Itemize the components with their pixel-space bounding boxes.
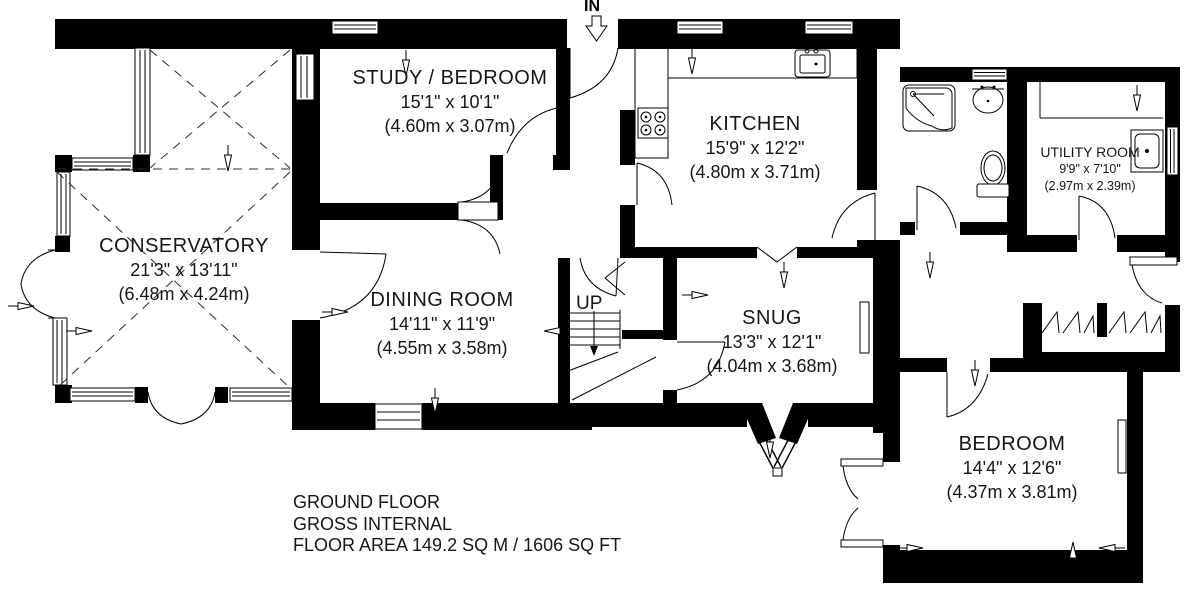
conservatory-windows	[53, 48, 292, 401]
study-bedroom-label: STUDY / BEDROOM 15'1" x 10'1" (4.60m x 3…	[353, 66, 548, 138]
floor-summary-line3: FLOOR AREA 149.2 SQ M / 1606 SQ FT	[293, 535, 621, 557]
floor-summary: GROUND FLOOR GROSS INTERNAL FLOOR AREA 1…	[293, 492, 621, 557]
room-dims-metric: (6.48m x 4.24m)	[99, 282, 269, 306]
entrance-door	[570, 48, 618, 98]
kitchen-corridor-door	[832, 193, 875, 240]
staircase	[568, 310, 656, 400]
dining-room-label: DINING ROOM 14'11" x 11'9" (4.55m x 3.58…	[370, 288, 513, 360]
room-dims-imperial: 14'4" x 12'6"	[946, 456, 1077, 480]
dining-window	[375, 404, 422, 429]
room-name: KITCHEN	[689, 112, 820, 136]
floorplan-canvas: CONSERVATORY 21'3" x 13'11" (6.48m x 4.2…	[0, 0, 1200, 600]
bedroom-label: BEDROOM 14'4" x 12'6" (4.37m x 3.81m)	[946, 432, 1077, 504]
basin-symbol	[972, 86, 1004, 114]
floor-summary-line2: GROSS INTERNAL	[293, 514, 621, 536]
conservatory-roof-lines	[57, 50, 292, 388]
room-name: CONSERVATORY	[99, 234, 269, 258]
radiator-snug	[860, 302, 869, 353]
floor-summary-line1: GROUND FLOOR	[293, 492, 621, 514]
room-dims-metric: (4.04m x 3.68m)	[706, 354, 837, 378]
room-name: BEDROOM	[946, 432, 1077, 456]
room-dims-metric: (4.60m x 3.07m)	[353, 114, 548, 138]
utility-door	[1079, 196, 1115, 240]
utility-room-label: UTILITY ROOM 9'9" x 7'10" (2.97m x 2.39m…	[1040, 144, 1139, 195]
room-name: STUDY / BEDROOM	[353, 66, 548, 90]
bedroom-french-doors	[841, 459, 883, 547]
conservatory-bottom-french-doors	[148, 392, 215, 424]
conservatory-label: CONSERVATORY 21'3" x 13'11" (6.48m x 4.2…	[99, 234, 269, 306]
entrance-arrow-icon	[586, 16, 607, 41]
room-dims-metric: (4.80m x 3.71m)	[689, 160, 820, 184]
room-dims-metric: (4.37m x 3.81m)	[946, 480, 1077, 504]
kitchen-label: KITCHEN 15'9" x 12'2" (4.80m x 3.71m)	[689, 112, 820, 184]
cupboard-door-chevron	[605, 262, 625, 295]
room-dims-imperial: 21'3" x 13'11"	[99, 258, 269, 282]
toilet-symbol	[977, 151, 1009, 197]
snug-label: SNUG 13'3" x 12'1" (4.04m x 3.68m)	[706, 306, 837, 378]
room-dims-imperial: 9'9" x 7'10"	[1040, 161, 1139, 178]
room-dims-imperial: 15'9" x 12'2"	[689, 136, 820, 160]
radiator-bedroom	[1118, 420, 1126, 473]
entrance-in-label: IN	[584, 0, 600, 16]
room-name: UTILITY ROOM	[1040, 144, 1139, 161]
room-dims-metric: (4.55m x 3.58m)	[370, 336, 513, 360]
hall-dining-door	[580, 258, 618, 296]
room-name: SNUG	[706, 306, 837, 330]
room-dims-metric: (2.97m x 2.39m)	[1040, 178, 1139, 195]
room-name: DINING ROOM	[370, 288, 513, 312]
stairs-direction-arrow	[590, 346, 598, 356]
shower-room-window	[972, 69, 1007, 80]
hall-kitchen-door	[637, 163, 672, 205]
stairs-up-label: UP	[576, 293, 602, 315]
room-dims-imperial: 14'11" x 11'9"	[370, 312, 513, 336]
kitchen-sink-symbol	[795, 49, 830, 77]
room-dims-imperial: 13'3" x 12'1"	[706, 330, 837, 354]
bedroom-door	[947, 372, 988, 417]
room-dims-imperial: 15'1" x 10'1"	[353, 90, 548, 114]
shower-symbol	[903, 85, 955, 131]
snug-splayed-opening	[757, 247, 797, 262]
utility-counter	[1040, 82, 1163, 118]
hob-symbol	[638, 108, 668, 138]
shower-room-door	[917, 186, 956, 230]
utility-window	[1167, 127, 1178, 175]
rear-door	[1130, 257, 1177, 303]
